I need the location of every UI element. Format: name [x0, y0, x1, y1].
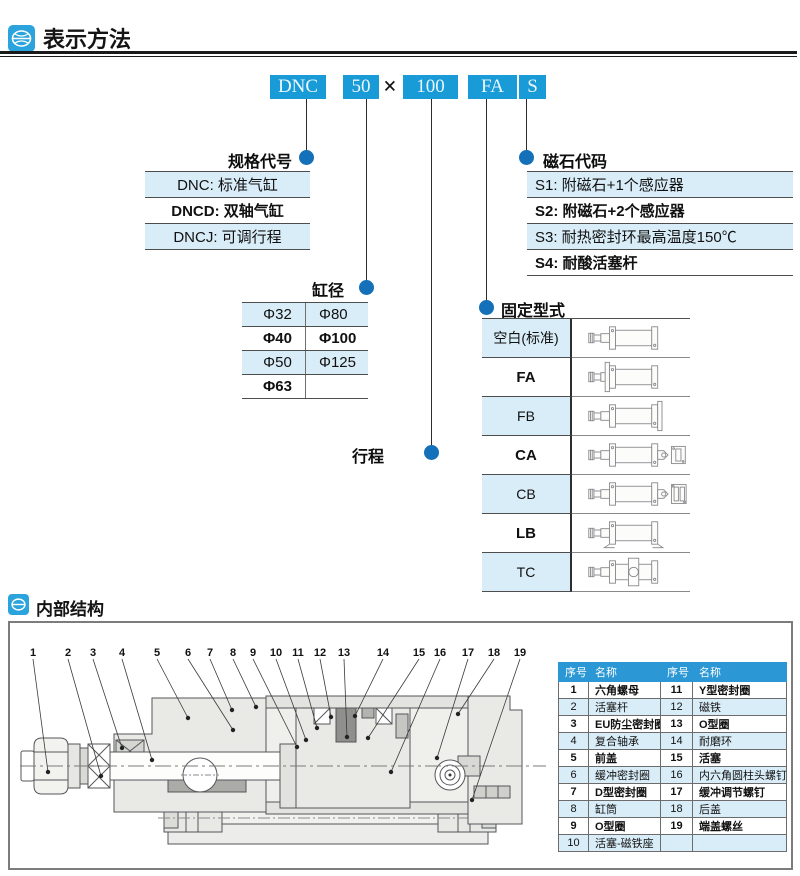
table-row: S3: 耐热密封环最高温度150℃	[527, 224, 793, 250]
callout-number: 3	[90, 647, 96, 659]
cylinder-basic-icon	[572, 319, 690, 358]
parts-row: 6缓冲密封圈16内六角圆柱头螺钉	[559, 767, 787, 784]
callout-number: 18	[488, 647, 500, 659]
title-rule-thick	[0, 51, 797, 54]
mounting-type-label: FB	[482, 397, 572, 436]
parts-row: 4复合轴承14耐磨环	[559, 733, 787, 750]
part-name-cell: Y型密封圈	[693, 682, 787, 699]
connector-line-magnet	[526, 99, 527, 151]
part-name-cell: 端盖螺丝	[693, 818, 787, 835]
parts-row: 2活塞杆12磁铁	[559, 699, 787, 716]
bore-label: 缸径	[312, 277, 344, 301]
connector-line-spec	[306, 99, 307, 151]
parts-row: 1六角螺母11Y型密封圈	[559, 682, 787, 699]
table-cell: S4: 耐酸活塞杆	[535, 252, 793, 273]
connector-line-stroke	[431, 99, 432, 446]
part-number-cell: 13	[661, 716, 693, 733]
connector-line-mounting	[486, 99, 487, 301]
internal-structure-title: 内部结构	[36, 595, 104, 620]
callout-number: 10	[270, 647, 282, 659]
bore-cell: Φ32	[250, 303, 306, 326]
part-name-cell: 后盖	[693, 801, 787, 818]
table-cell: DNC: 标准气缸	[145, 174, 310, 195]
part-number-cell: 4	[559, 733, 589, 750]
cylinder-trunnion-icon	[572, 553, 690, 592]
part-number-cell: 1	[559, 682, 589, 699]
table-cell: S3: 耐热密封环最高温度150℃	[535, 226, 793, 247]
magnet-code-label: 磁石代码	[543, 148, 607, 172]
table-row: S2: 附磁石+2个感应器	[527, 198, 793, 224]
part-number-cell: 3	[559, 716, 589, 733]
part-number-cell: 17	[661, 784, 693, 801]
mounting-row: LB	[482, 514, 690, 553]
parts-row: 10活塞-磁铁座	[559, 835, 787, 852]
callout-number: 2	[65, 647, 71, 659]
connector-dot-stroke	[424, 445, 439, 460]
connector-dot-spec	[299, 150, 314, 165]
callout-number: 19	[514, 647, 526, 659]
table-row: DNCJ: 可调行程	[145, 224, 310, 250]
part-name-cell: 活塞-磁铁座	[589, 835, 661, 852]
part-number-cell: 15	[661, 750, 693, 767]
cylinder-foot-mount-icon	[572, 514, 690, 553]
parts-row: 5前盖15活塞	[559, 750, 787, 767]
part-number-cell: 9	[559, 818, 589, 835]
cylinder-cross-section-drawing: 12345678910111213141516171819	[18, 638, 550, 860]
mounting-type-label: LB	[482, 514, 572, 553]
callout-number: 9	[250, 647, 256, 659]
part-name-cell: 内六角圆柱头螺钉	[693, 767, 787, 784]
mounting-type-label: CA	[482, 436, 572, 475]
part-name-cell: 活塞杆	[589, 699, 661, 716]
model-code-segment: 50	[343, 75, 379, 99]
bore-table: Φ32Φ80Φ40Φ100Φ50Φ125Φ63	[242, 302, 368, 399]
parts-row: 3EU防尘密封圈13O型圈	[559, 716, 787, 733]
connector-dot-bore	[359, 280, 374, 295]
callout-number: 5	[154, 647, 160, 659]
callout-number: 16	[434, 647, 446, 659]
mounting-type-label: CB	[482, 475, 572, 514]
connector-line-bore	[366, 99, 367, 281]
part-name-cell: 磁铁	[693, 699, 787, 716]
connector-dot-mounting	[479, 300, 494, 315]
cylinder-double-clevis-icon	[572, 475, 690, 514]
table-cell: S1: 附磁石+1个感应器	[535, 174, 793, 195]
part-number-cell: 8	[559, 801, 589, 818]
mounting-row: CB	[482, 475, 690, 514]
parts-row: 8缸筒18后盖	[559, 801, 787, 818]
part-number-cell: 12	[661, 699, 693, 716]
part-number-cell	[661, 835, 693, 852]
table-row: DNCD: 双轴气缸	[145, 198, 310, 224]
part-name-cell: O型圈	[693, 716, 787, 733]
part-name-cell: 复合轴承	[589, 733, 661, 750]
part-number-cell: 11	[661, 682, 693, 699]
stroke-label: 行程	[352, 443, 384, 467]
table-row: S4: 耐酸活塞杆	[527, 250, 793, 276]
part-number-cell: 18	[661, 801, 693, 818]
spec-code-label: 规格代号	[228, 148, 292, 172]
connector-dot-magnet	[519, 150, 534, 165]
mounting-table: 空白(标准)FAFBCACBLBTC	[482, 318, 690, 592]
part-number-cell: 10	[559, 835, 589, 852]
part-name-cell	[693, 835, 787, 852]
part-number-cell: 16	[661, 767, 693, 784]
catalog-page: 表示方法 DNC50×100FAS 规格代号 缸径 行程 磁石代码 固定型式 D…	[0, 0, 800, 876]
model-code-segment: 100	[403, 75, 458, 99]
part-number-cell: 7	[559, 784, 589, 801]
title-rule-thin	[0, 56, 797, 57]
parts-table-header: 序号 名称 序号 名称	[559, 663, 787, 682]
callout-number: 8	[230, 647, 236, 659]
part-name-cell: 缓冲调节螺钉	[693, 784, 787, 801]
mounting-type-label: 空白(标准)	[482, 319, 572, 358]
mounting-type-label: TC	[482, 553, 572, 592]
brand-globe-icon	[8, 25, 35, 52]
table-row: Φ63	[242, 375, 368, 399]
callout-number: 6	[185, 647, 191, 659]
part-number-cell: 19	[661, 818, 693, 835]
bore-cell: Φ80	[306, 306, 368, 323]
part-name-cell: 耐磨环	[693, 733, 787, 750]
bore-cell: Φ63	[250, 375, 306, 398]
table-cell: DNCD: 双轴气缸	[145, 200, 310, 221]
brand-globe-icon-small	[8, 594, 29, 615]
table-cell: DNCJ: 可调行程	[145, 226, 310, 247]
cylinder-rear-flange-icon	[572, 397, 690, 436]
part-name-cell: EU防尘密封圈	[589, 716, 661, 733]
table-row: Φ32Φ80	[242, 303, 368, 327]
part-number-cell: 14	[661, 733, 693, 750]
part-number-cell: 5	[559, 750, 589, 767]
part-name-cell: 缸筒	[589, 801, 661, 818]
part-name-cell: 缓冲密封圈	[589, 767, 661, 784]
col-header-name: 名称	[589, 663, 661, 682]
callout-number: 17	[462, 647, 474, 659]
part-name-cell: D型密封圈	[589, 784, 661, 801]
parts-row: 9O型圈19端盖螺丝	[559, 818, 787, 835]
magnet-code-table: S1: 附磁石+1个感应器S2: 附磁石+2个感应器S3: 耐热密封环最高温度1…	[527, 171, 793, 276]
callout-number: 7	[207, 647, 213, 659]
parts-row: 7D型密封圈17缓冲调节螺钉	[559, 784, 787, 801]
col-header-number: 序号	[661, 663, 693, 682]
part-name-cell: 活塞	[693, 750, 787, 767]
part-name-cell: O型圈	[589, 818, 661, 835]
callout-number: 1	[30, 647, 36, 659]
callout-number: 11	[292, 647, 304, 659]
bore-cell: Φ50	[250, 351, 306, 374]
cylinder-front-flange-icon	[572, 358, 690, 397]
spec-code-table: DNC: 标准气缸DNCD: 双轴气缸DNCJ: 可调行程	[145, 171, 310, 250]
col-header-number: 序号	[559, 663, 589, 682]
callout-number: 12	[314, 647, 326, 659]
mounting-type-label: FA	[482, 358, 572, 397]
callout-number: 15	[413, 647, 425, 659]
parts-list-table: 序号 名称 序号 名称 1六角螺母11Y型密封圈2活塞杆12磁铁3EU防尘密封圈…	[558, 662, 787, 852]
table-row: Φ50Φ125	[242, 351, 368, 375]
model-code-segment: DNC	[270, 75, 326, 99]
part-number-cell: 2	[559, 699, 589, 716]
callout-number: 4	[119, 647, 126, 659]
model-code-segment: FA	[468, 75, 517, 99]
table-row: Φ40Φ100	[242, 327, 368, 351]
bore-cell: Φ125	[306, 354, 368, 371]
part-name-cell: 前盖	[589, 750, 661, 767]
table-cell: S2: 附磁石+2个感应器	[535, 200, 793, 221]
model-code-separator: ×	[376, 73, 404, 101]
table-row: DNC: 标准气缸	[145, 172, 310, 198]
col-header-name: 名称	[693, 663, 787, 682]
model-code-segment: S	[519, 75, 546, 99]
callout-number: 13	[338, 647, 350, 659]
mounting-row: FB	[482, 397, 690, 436]
mounting-row: FA	[482, 358, 690, 397]
page-title: 表示方法	[43, 22, 131, 54]
bore-cell: Φ40	[250, 327, 306, 350]
table-row: S1: 附磁石+1个感应器	[527, 172, 793, 198]
callout-number: 14	[377, 647, 390, 659]
mounting-row: CA	[482, 436, 690, 475]
part-number-cell: 6	[559, 767, 589, 784]
part-name-cell: 六角螺母	[589, 682, 661, 699]
mounting-row: TC	[482, 553, 690, 592]
cylinder-rear-clevis-icon	[572, 436, 690, 475]
bore-cell: Φ100	[306, 330, 368, 347]
mounting-row: 空白(标准)	[482, 319, 690, 358]
